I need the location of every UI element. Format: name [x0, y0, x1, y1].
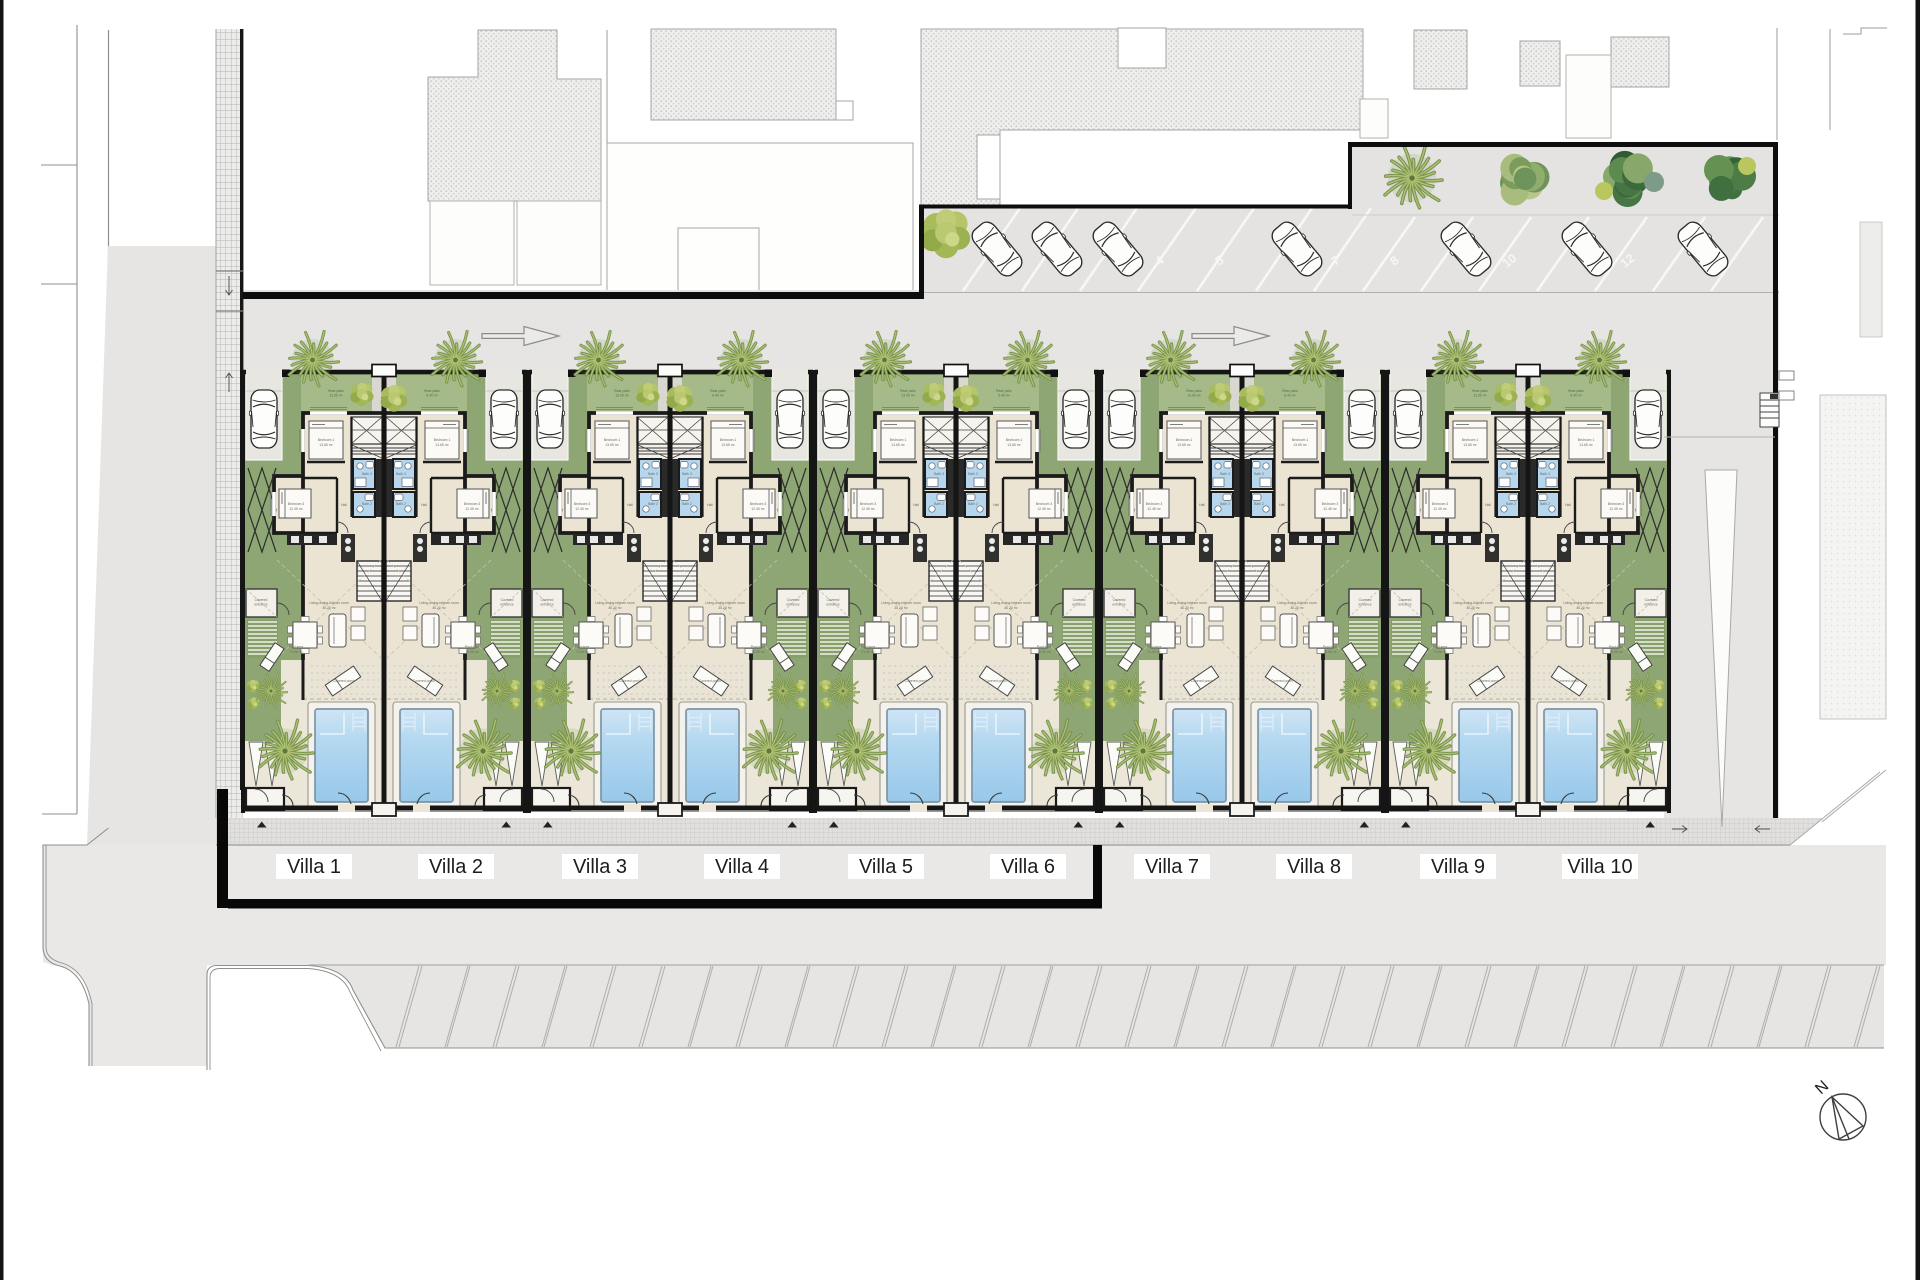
svg-text:Villa 8: Villa 8 [1287, 856, 1341, 878]
svg-text:Villa 3: Villa 3 [573, 856, 627, 878]
svg-text:Villa 9: Villa 9 [1431, 856, 1485, 878]
svg-text:Villa 4: Villa 4 [715, 856, 769, 878]
svg-text:Villa 1: Villa 1 [287, 856, 341, 878]
svg-text:Villa 6: Villa 6 [1001, 856, 1055, 878]
svg-text:Villa 5: Villa 5 [859, 856, 913, 878]
svg-text:Villa 10: Villa 10 [1567, 856, 1632, 878]
svg-text:Villa 2: Villa 2 [429, 856, 483, 878]
svg-text:Villa 7: Villa 7 [1145, 856, 1199, 878]
